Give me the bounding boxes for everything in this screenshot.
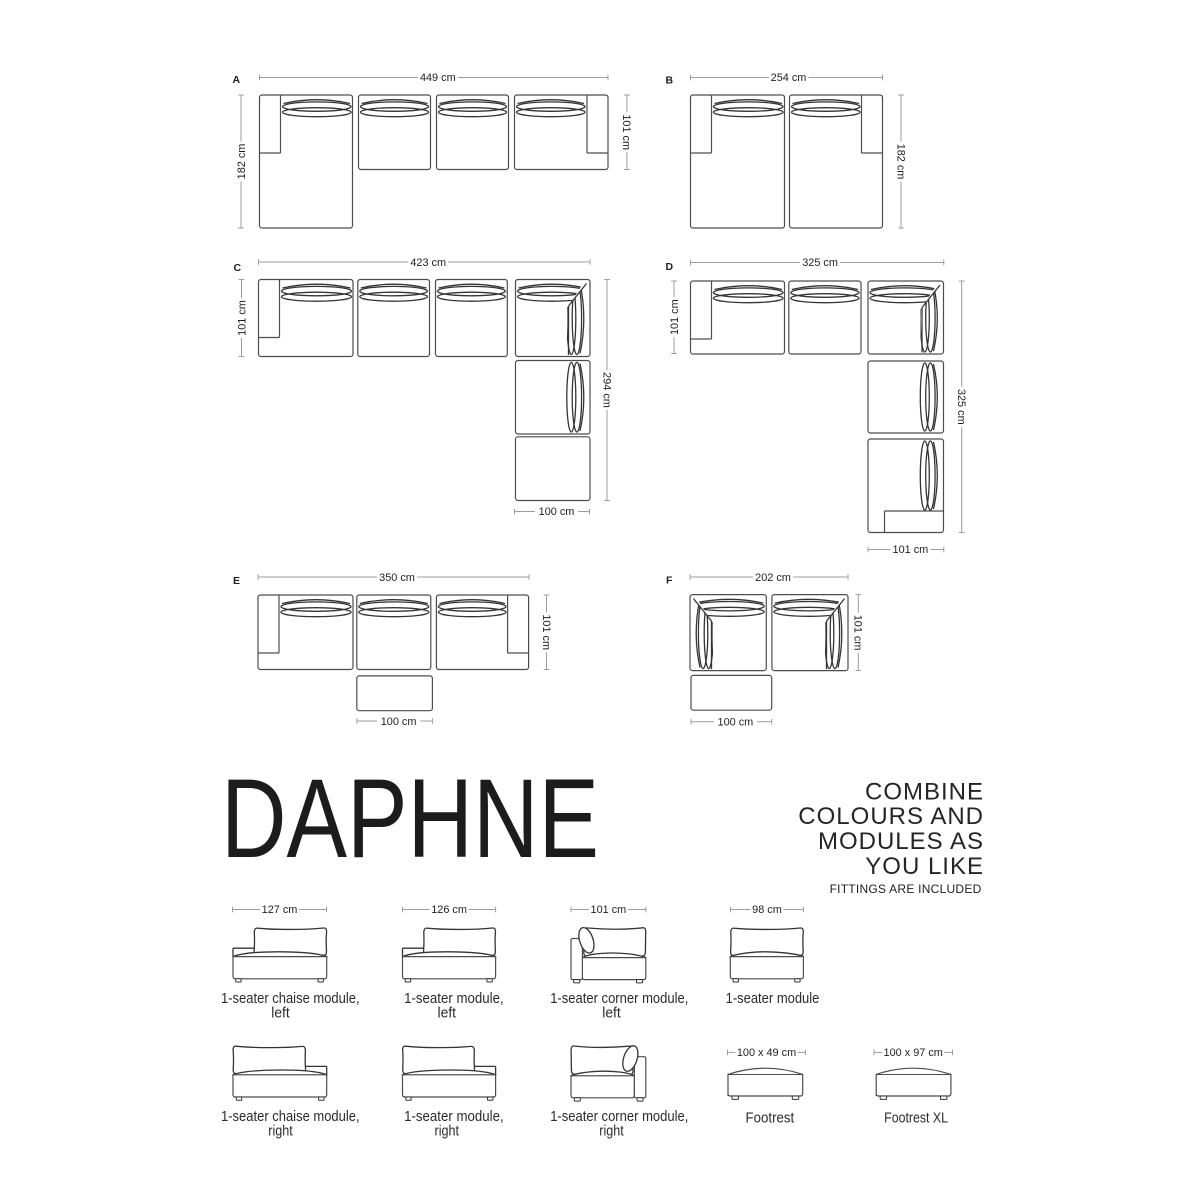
svg-text:100 cm: 100 cm	[718, 717, 754, 729]
svg-text:101 cm: 101 cm	[669, 299, 681, 335]
svg-text:right: right	[599, 1123, 624, 1139]
svg-text:MODULES AS: MODULES AS	[818, 828, 984, 855]
svg-text:left: left	[602, 1005, 621, 1021]
svg-text:left: left	[271, 1005, 290, 1021]
svg-text:182 cm: 182 cm	[236, 144, 248, 180]
svg-text:101 cm: 101 cm	[620, 114, 632, 150]
svg-text:101 cm: 101 cm	[540, 614, 552, 650]
svg-text:423 cm: 423 cm	[410, 257, 446, 269]
svg-text:DAPHNE: DAPHNE	[221, 756, 599, 881]
svg-text:D: D	[666, 261, 674, 273]
svg-text:449 cm: 449 cm	[420, 72, 456, 84]
svg-text:254 cm: 254 cm	[771, 72, 807, 84]
svg-text:COMBINE: COMBINE	[865, 778, 984, 805]
svg-text:101 cm: 101 cm	[893, 544, 929, 556]
svg-text:YOU LIKE: YOU LIKE	[865, 853, 984, 880]
svg-text:294 cm: 294 cm	[600, 372, 612, 408]
svg-text:C: C	[234, 262, 242, 274]
svg-text:325 cm: 325 cm	[802, 257, 838, 269]
svg-text:1-seater chaise module,: 1-seater chaise module,	[221, 991, 360, 1007]
svg-text:182 cm: 182 cm	[894, 144, 906, 180]
svg-text:350 cm: 350 cm	[379, 572, 415, 584]
svg-text:98 cm: 98 cm	[752, 904, 782, 916]
svg-text:Footrest: Footrest	[746, 1111, 795, 1127]
svg-text:A: A	[233, 74, 241, 86]
svg-text:101 cm: 101 cm	[236, 300, 248, 336]
svg-text:B: B	[666, 75, 674, 87]
svg-text:right: right	[268, 1123, 293, 1139]
svg-text:COLOURS AND: COLOURS AND	[798, 803, 984, 830]
svg-text:F: F	[666, 575, 673, 587]
svg-text:1-seater module: 1-seater module	[726, 991, 820, 1007]
svg-text:126 cm: 126 cm	[431, 904, 467, 916]
svg-text:FITTINGS ARE INCLUDED: FITTINGS ARE INCLUDED	[830, 882, 982, 896]
svg-text:127 cm: 127 cm	[262, 904, 298, 916]
svg-text:325 cm: 325 cm	[955, 389, 967, 425]
svg-text:101 cm: 101 cm	[591, 904, 627, 916]
svg-text:left: left	[438, 1005, 457, 1021]
svg-text:right: right	[435, 1123, 460, 1139]
svg-text:E: E	[233, 575, 240, 587]
svg-text:100 x 97 cm: 100 x 97 cm	[884, 1047, 943, 1059]
svg-text:100 x 49 cm: 100 x 49 cm	[737, 1047, 796, 1059]
svg-text:101 cm: 101 cm	[852, 615, 864, 651]
svg-text:Footrest XL: Footrest XL	[884, 1111, 948, 1127]
svg-text:100 cm: 100 cm	[381, 716, 417, 728]
svg-text:202 cm: 202 cm	[755, 572, 791, 584]
svg-text:100 cm: 100 cm	[539, 506, 575, 518]
